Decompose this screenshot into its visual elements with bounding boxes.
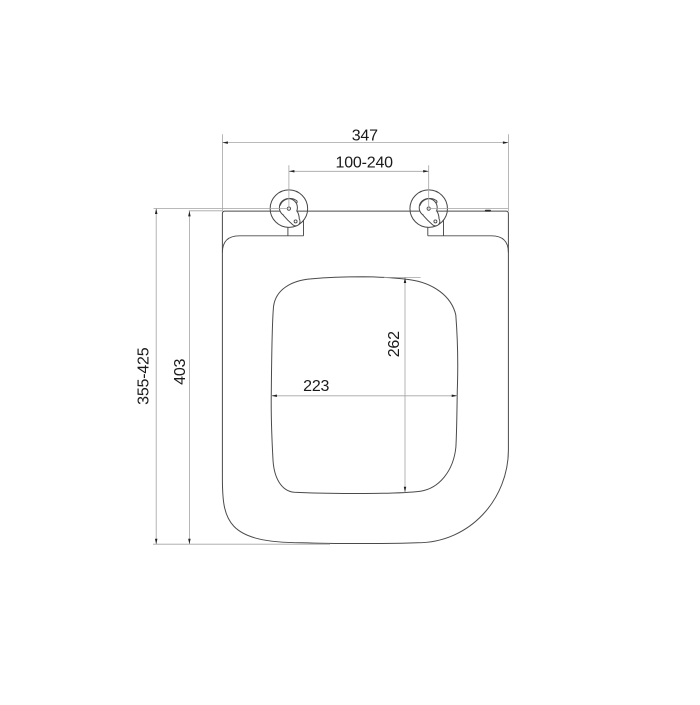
svg-text:347: 347 — [352, 127, 378, 144]
svg-text:223: 223 — [303, 378, 329, 395]
svg-text:100-240: 100-240 — [336, 154, 394, 171]
svg-text:355-425: 355-425 — [135, 347, 152, 405]
svg-text:403: 403 — [172, 358, 189, 384]
svg-text:262: 262 — [386, 331, 403, 357]
